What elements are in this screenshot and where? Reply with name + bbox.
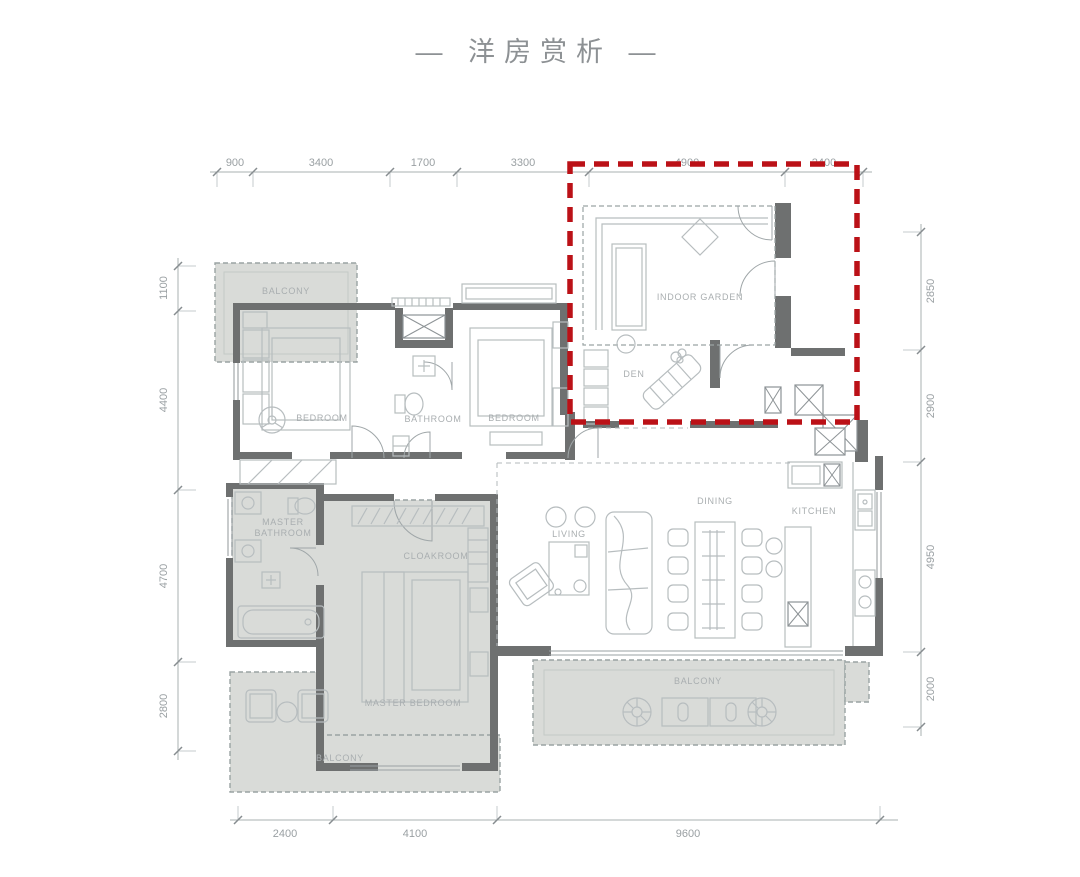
stool bbox=[617, 335, 635, 353]
kitchen-island bbox=[785, 527, 811, 647]
dim-left-3: 2800 bbox=[158, 694, 170, 718]
room-label-living: LIVING bbox=[552, 529, 586, 539]
room-label-cloakroom: CLOAKROOM bbox=[404, 551, 469, 561]
room-label-dining: DINING bbox=[697, 496, 733, 506]
dim-left-1: 4400 bbox=[158, 388, 170, 412]
sink bbox=[413, 356, 435, 376]
room-label-master-bath-1: MASTER bbox=[262, 517, 304, 527]
dim-top-3: 3300 bbox=[511, 157, 535, 169]
dim-right-0: 2850 bbox=[925, 279, 937, 303]
room-label-bedroom-1: BEDROOM bbox=[296, 413, 348, 423]
dim-right-2: 4950 bbox=[925, 545, 937, 569]
dim-right-3: 2000 bbox=[925, 677, 937, 701]
coffee-table bbox=[549, 542, 589, 595]
hatch-strip bbox=[392, 298, 450, 306]
dimension-right: 2850 2900 4950 2000 bbox=[903, 224, 937, 736]
dining-table bbox=[695, 522, 735, 638]
balcony-bottom-right-area bbox=[533, 660, 845, 745]
chaise-lounge bbox=[641, 352, 703, 411]
bay-window bbox=[462, 284, 556, 303]
room-label-indoor-garden: INDOOR GARDEN bbox=[657, 292, 743, 302]
room-label-balcony-tl: BALCONY bbox=[262, 286, 310, 296]
armchair bbox=[508, 561, 556, 608]
room-label-master-bedroom: MASTER BEDROOM bbox=[365, 698, 462, 708]
toilet bbox=[395, 393, 423, 415]
room-label-kitchen: KITCHEN bbox=[792, 506, 837, 516]
room-label-balcony-br: BALCONY bbox=[674, 676, 722, 686]
sofa bbox=[606, 512, 652, 634]
dim-bottom-2: 9600 bbox=[676, 828, 700, 840]
garden-bench bbox=[612, 244, 646, 330]
floor-plan-drawing: BALCONY BEDROOM BATHROOM BEDROOM INDOOR … bbox=[0, 0, 1080, 877]
dim-top-1: 3400 bbox=[309, 157, 333, 169]
shaded-areas bbox=[215, 263, 869, 792]
shaft-icon bbox=[403, 315, 445, 338]
door-arc bbox=[740, 261, 775, 296]
room-label-bedroom-2: BEDROOM bbox=[488, 413, 540, 423]
bar-stool bbox=[766, 538, 782, 554]
stove bbox=[855, 570, 875, 616]
closet-hatch bbox=[240, 460, 336, 484]
dim-left-0: 1100 bbox=[158, 276, 170, 300]
floor-plan-page: — 洋房赏析 — bbox=[0, 0, 1080, 877]
dim-top-0: 900 bbox=[226, 157, 244, 169]
dim-top-2: 1700 bbox=[411, 157, 435, 169]
kitchen-cabinet-icon bbox=[788, 428, 845, 488]
pouf bbox=[546, 507, 566, 527]
dimension-left: 1100 4400 4700 2800 bbox=[158, 258, 196, 760]
door-arc bbox=[720, 345, 753, 378]
room-label-balcony-bl: BALCONY bbox=[316, 753, 364, 763]
bar-stool bbox=[766, 561, 782, 577]
bed bbox=[470, 328, 552, 445]
room-label-bathroom: BATHROOM bbox=[404, 414, 461, 424]
bookshelf bbox=[584, 350, 608, 424]
room-label-den: DEN bbox=[623, 369, 644, 379]
dim-right-1: 2900 bbox=[925, 394, 937, 418]
kitchen-sink bbox=[855, 490, 875, 530]
dimension-bottom: 2400 4100 9600 bbox=[230, 806, 898, 840]
door-arc bbox=[738, 206, 772, 240]
dim-bottom-0: 2400 bbox=[273, 828, 297, 840]
pouf bbox=[575, 507, 595, 527]
dim-left-2: 4700 bbox=[158, 564, 170, 588]
dim-bottom-1: 4100 bbox=[403, 828, 427, 840]
plant-icon bbox=[671, 349, 686, 363]
room-label-master-bath-2: BATHROOM bbox=[254, 528, 311, 538]
balcony-step-area bbox=[845, 662, 869, 702]
